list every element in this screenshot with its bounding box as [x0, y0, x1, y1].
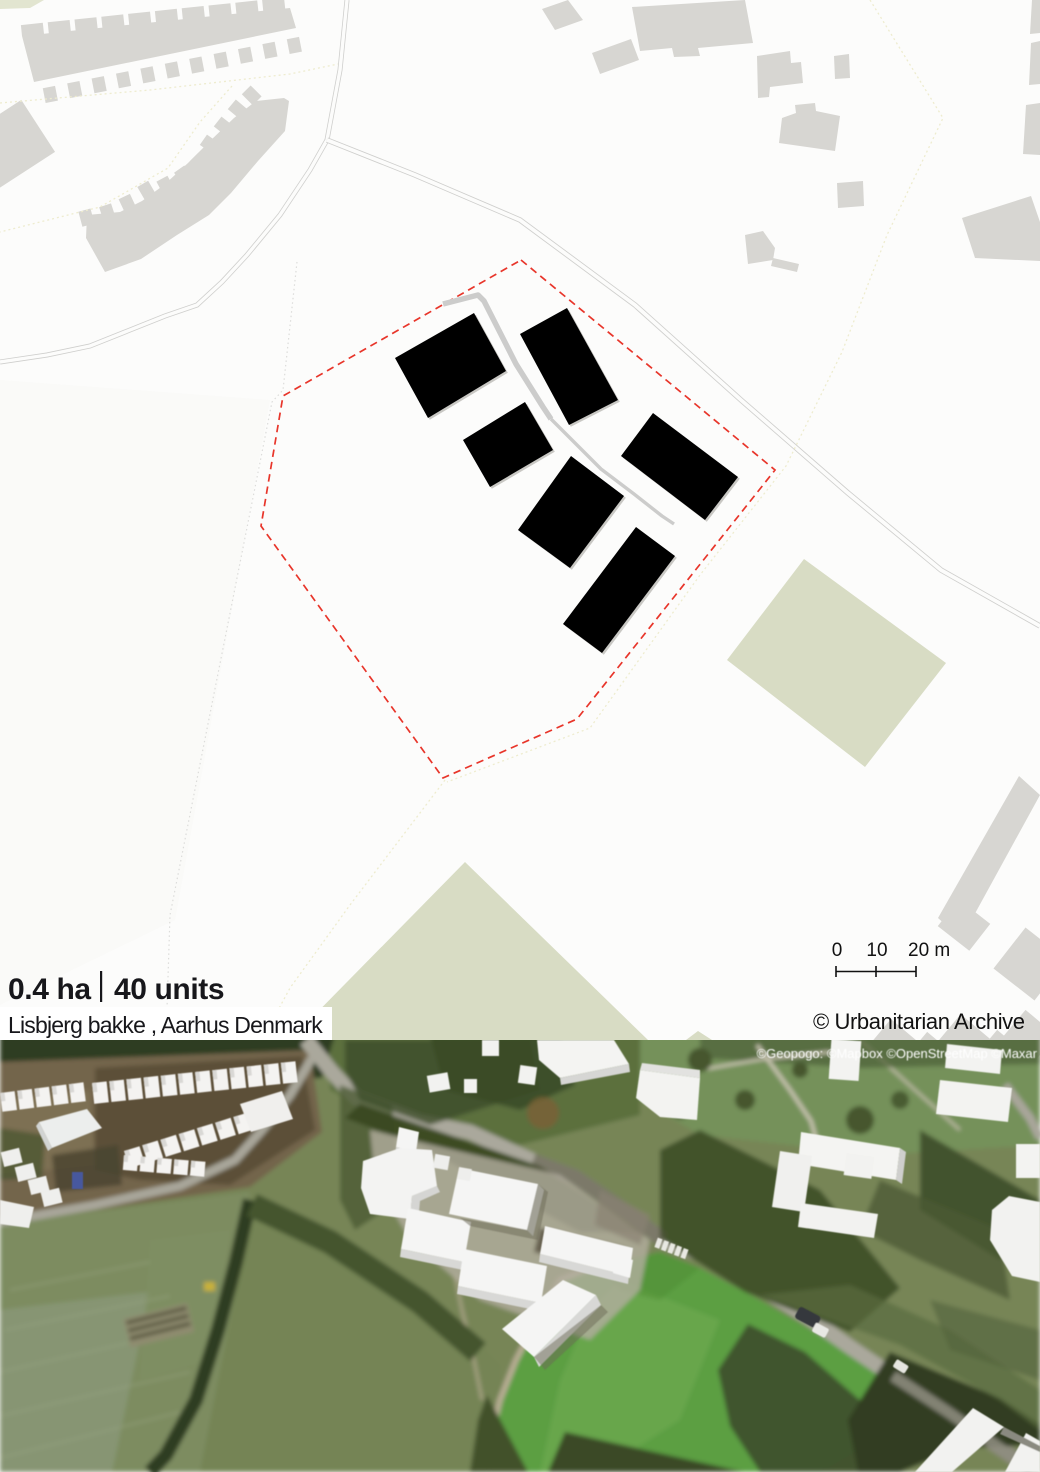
svg-text:©Geopogo: ©Mapbox ©OpenStreetM: ©Geopogo: ©Mapbox ©OpenStreetMap ©Maxar	[757, 1046, 1038, 1061]
svg-text:40 units: 40 units	[114, 973, 224, 1006]
svg-text:Lisbjerg bakke , Aarhus Denmar: Lisbjerg bakke , Aarhus Denmark	[8, 1012, 323, 1038]
svg-text:0.4 ha: 0.4 ha	[8, 973, 91, 1006]
svg-text:© Urbanitarian Archive: © Urbanitarian Archive	[813, 1009, 1025, 1034]
svg-text:10: 10	[866, 940, 887, 961]
svg-text:20 m: 20 m	[908, 940, 950, 961]
svg-text:0: 0	[832, 940, 843, 961]
